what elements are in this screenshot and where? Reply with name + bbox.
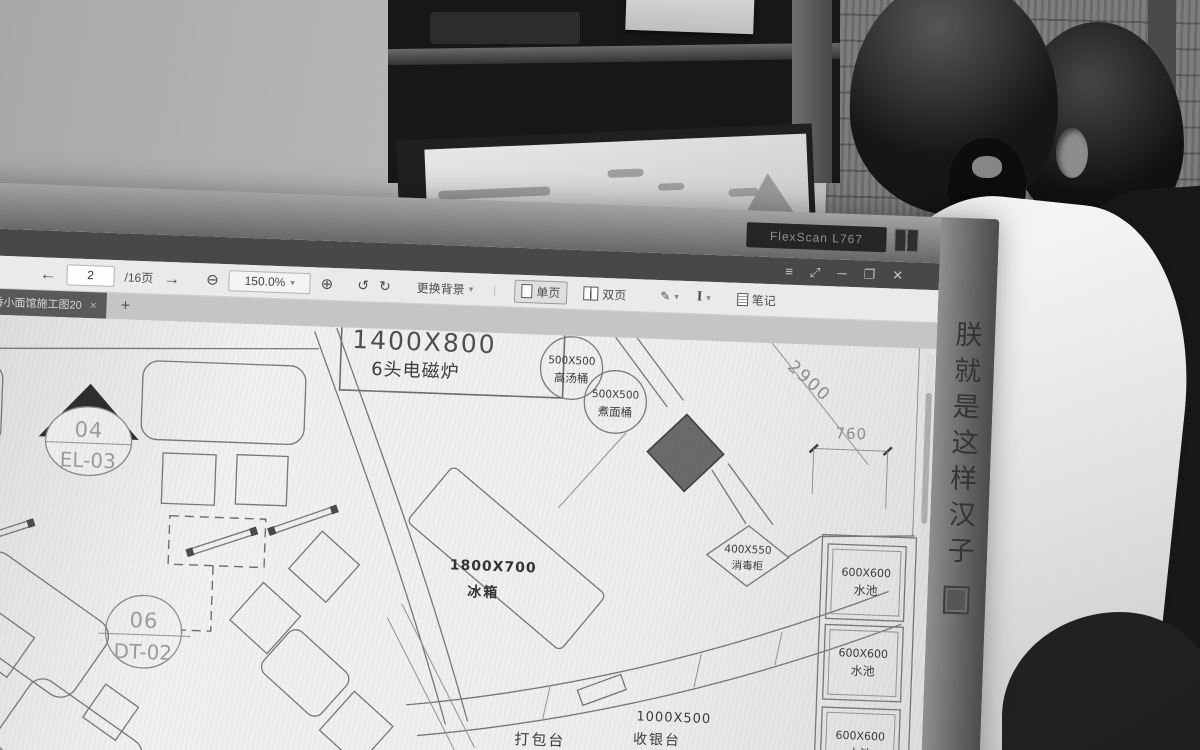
monitor-brand-label: FlexScan L767 xyxy=(746,222,887,252)
stove-label: 6头电磁炉 xyxy=(371,359,460,383)
disinfect-label: 消毒柜 xyxy=(731,559,763,573)
bg-smudge xyxy=(607,168,643,178)
notes-button[interactable]: 笔记 xyxy=(730,288,782,311)
dim-2900: 2900 xyxy=(783,357,834,406)
note-icon xyxy=(737,292,748,305)
menu-icon[interactable]: ≡ xyxy=(785,265,793,278)
change-background-label: 更换背景 xyxy=(416,279,465,298)
bg-smudge xyxy=(658,183,684,191)
single-page-icon xyxy=(521,284,533,298)
marker-dt-num: 06 xyxy=(129,607,159,633)
bench-bar xyxy=(0,518,35,543)
marker-dt-code: DT-02 xyxy=(113,639,172,665)
monitor-screen: ≡ ⤢ ─ ❐ ✕ ← 2 /16页 → ⊖ 150.0% ▾ ⊕ ↺ xyxy=(0,226,940,750)
tab-close-icon[interactable]: × xyxy=(90,298,98,312)
fullscreen-icon[interactable]: ⤢ xyxy=(810,265,821,278)
double-page-label: 双页 xyxy=(602,285,627,303)
floor-plan: 04 EL-03 xyxy=(0,312,936,750)
text-tool-icon: I xyxy=(697,289,703,305)
dim-760: 760 xyxy=(835,424,867,443)
monitor-logo xyxy=(894,229,919,253)
cashier-label: 收银台 xyxy=(633,731,682,749)
fridge-size: 1800X700 xyxy=(449,557,536,576)
soup-pot-label: 高汤桶 xyxy=(554,371,589,386)
sink2-label: 水池 xyxy=(850,664,874,679)
marker-el-code: EL-03 xyxy=(59,447,116,473)
double-page-button[interactable]: 双页 xyxy=(577,282,633,305)
main-monitor: FlexScan L767 ≡ ⤢ ─ ❐ ✕ ← 2 /16页 → ⊖ xyxy=(0,180,999,750)
new-tab-button[interactable]: + xyxy=(120,297,130,315)
bench-bar xyxy=(185,527,258,558)
calligraphy-text: 朕就是这样汉子 xyxy=(938,320,986,573)
page-total-label: /16页 xyxy=(124,268,153,286)
shelf-white-box xyxy=(625,0,755,34)
single-page-label: 单页 xyxy=(536,283,561,301)
pen-tool[interactable]: ✎ ▾ xyxy=(660,289,679,304)
cashier-size: 1000X500 xyxy=(636,709,711,727)
photo-scene: FlexScan L767 ≡ ⤢ ─ ❐ ✕ ← 2 /16页 → ⊖ xyxy=(0,0,1200,750)
pen-icon: ✎ xyxy=(660,289,671,303)
zoom-level-value: 150.0% xyxy=(244,274,285,289)
rotate-left-icon[interactable]: ↺ xyxy=(357,278,369,292)
bench-bar xyxy=(267,504,339,535)
shelf-board xyxy=(388,43,840,65)
noodle-pot-label: 煮面桶 xyxy=(597,404,632,419)
page-number-input[interactable]: 2 xyxy=(66,264,115,287)
document-tab[interactable]: 香小面馆施工图20 × xyxy=(0,288,107,319)
bg-smudge xyxy=(728,188,758,197)
tab-title: 香小面馆施工图20 xyxy=(0,294,82,313)
sink2-size: 600X600 xyxy=(838,646,888,661)
single-page-button[interactable]: 单页 xyxy=(514,279,568,304)
chevron-down-icon: ▾ xyxy=(674,291,679,302)
hair-tie xyxy=(972,156,1002,178)
maximize-icon[interactable]: ❐ xyxy=(863,267,875,280)
prev-page-button[interactable]: ← xyxy=(39,265,57,283)
seal-stamp xyxy=(943,586,970,615)
double-page-icon xyxy=(583,286,599,301)
next-page-button[interactable]: → xyxy=(163,269,181,287)
window-controls: ≡ ⤢ ─ ❐ ✕ xyxy=(785,265,939,284)
close-icon[interactable]: ✕ xyxy=(892,269,903,282)
zoom-level-dropdown[interactable]: 150.0% ▾ xyxy=(228,270,311,294)
packing-counter-label: 打包台 xyxy=(514,730,566,750)
marker-el-num: 04 xyxy=(74,417,104,443)
shelf-item xyxy=(430,12,580,44)
sink3-label: 水池 xyxy=(847,746,871,750)
soup-pot-size: 500X500 xyxy=(548,354,596,368)
person-right-ear xyxy=(1056,128,1088,178)
change-background-dropdown[interactable]: 更换背景 ▾ xyxy=(416,279,473,298)
noodle-pot-size: 500X500 xyxy=(592,388,640,402)
fridge-label: 冰箱 xyxy=(467,583,500,601)
document-area: 04 EL-03 xyxy=(0,312,936,750)
text-tool[interactable]: I ▾ xyxy=(697,289,712,306)
bg-toolbar-smudge xyxy=(438,186,550,200)
sink3-size: 600X600 xyxy=(835,729,885,744)
rotate-right-icon[interactable]: ↻ xyxy=(379,279,391,293)
chevron-down-icon: ▾ xyxy=(706,292,711,303)
sink1-label: 水池 xyxy=(853,583,877,598)
minimize-icon[interactable]: ─ xyxy=(837,267,847,280)
toolbar-separator: | xyxy=(493,283,497,297)
notes-label: 笔记 xyxy=(751,291,776,309)
disinfect-size: 400X550 xyxy=(724,543,772,557)
zoom-out-icon[interactable]: ⊖ xyxy=(206,272,219,287)
chevron-down-icon: ▾ xyxy=(290,277,295,288)
chevron-down-icon: ▾ xyxy=(468,284,473,295)
sink1-size: 600X600 xyxy=(841,566,891,581)
zoom-in-icon[interactable]: ⊕ xyxy=(320,276,333,291)
